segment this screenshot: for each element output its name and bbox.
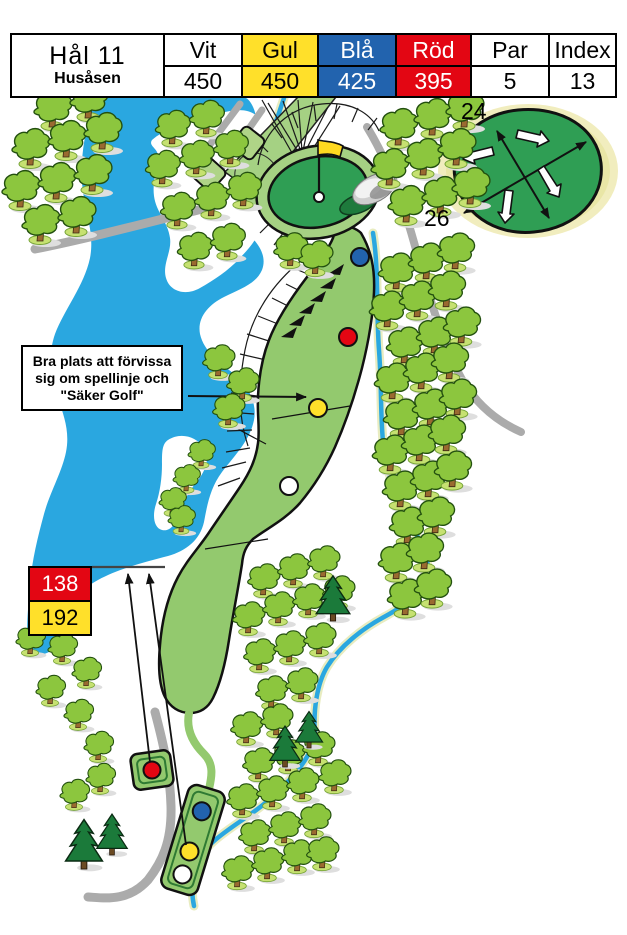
fairway-dot-white — [280, 477, 298, 495]
tee-length-white: 450 — [164, 66, 242, 97]
fairway-dot-red — [339, 328, 357, 346]
index-value: 13 — [549, 66, 616, 97]
tee-header-blue: Blå — [318, 34, 396, 66]
par-header: Par — [471, 34, 549, 66]
course-map — [0, 0, 627, 935]
distance-line-red — [128, 574, 150, 762]
distance-marker-red: 138 — [28, 566, 92, 602]
course-name: Husåsen — [12, 70, 163, 88]
annotation-line: sig om spellinje och — [23, 370, 181, 387]
index-header: Index — [549, 34, 616, 66]
tee-length-blue: 425 — [318, 66, 396, 97]
hole-marker — [314, 192, 324, 202]
annotation-callout: Bra plats att förvissa sig om spellinje … — [21, 345, 183, 411]
tee-header-white: Vit — [164, 34, 242, 66]
tee-header-red: Röd — [396, 34, 471, 66]
inset-depth-back: 24 — [461, 98, 487, 125]
distance-marker-yellow: 192 — [28, 600, 92, 636]
annotation-line: "Säker Golf" — [23, 387, 181, 404]
red-tee-box — [130, 749, 175, 790]
scorecard-table: Hål 11 Husåsen Vit Gul Blå Röd Par Index… — [10, 33, 617, 98]
fairway-dot-blue — [351, 248, 369, 266]
par-value: 5 — [471, 66, 549, 97]
tee-length-yellow: 450 — [242, 66, 318, 97]
tee-length-red: 395 — [396, 66, 471, 97]
tee-header-yellow: Gul — [242, 34, 318, 66]
hole-number: Hål 11 — [12, 43, 163, 70]
hole-name-cell: Hål 11 Husåsen — [11, 34, 164, 97]
flag-icon — [318, 140, 343, 157]
inset-depth-front: 26 — [424, 205, 450, 232]
golf-hole-guide-page: Hål 11 Husåsen Vit Gul Blå Röd Par Index… — [0, 0, 627, 935]
walk-path-to-tee — [188, 713, 211, 789]
annotation-line: Bra plats att förvissa — [23, 353, 181, 370]
fairway-dot-yellow — [309, 399, 327, 417]
